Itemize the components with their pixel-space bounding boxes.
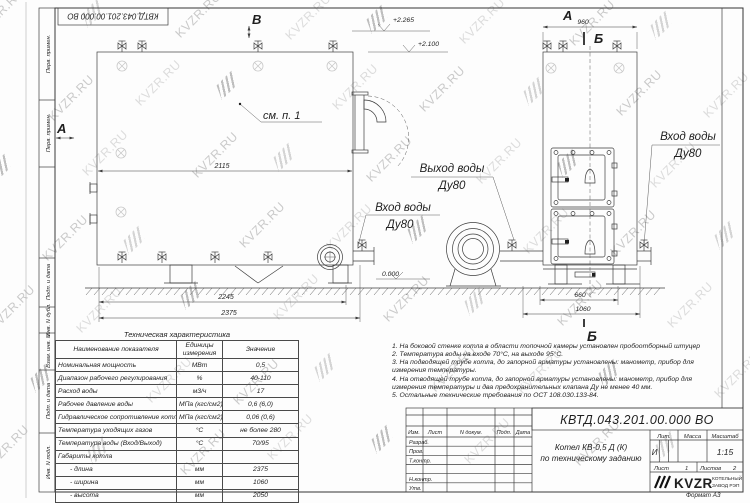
table-row: Расход водым3/ч17: [56, 385, 299, 398]
lit-header: Лит.: [656, 434, 671, 440]
valve-icon: [559, 41, 567, 52]
col-list: Лист: [427, 430, 443, 436]
table-row: Габариты котла: [56, 450, 299, 463]
product-name-line2: по техническому заданию: [540, 454, 641, 463]
scale-value: 1:15: [717, 447, 734, 457]
inlet-water-dn: Ду80: [385, 219, 414, 231]
drain-valve-icon: [264, 252, 272, 263]
dim-660: 660: [574, 292, 586, 299]
valve-icon: [118, 41, 126, 52]
section-b-bottom: Б: [587, 328, 597, 344]
elevation-marks: +2.265 +2.100 0.000: [352, 17, 448, 279]
outlet-water-label: Выход воды: [420, 163, 485, 175]
outlet-pipe: [352, 92, 409, 167]
section-b-top: Б: [594, 31, 603, 46]
kvzr-logo-cap1: КОТЕЛЬНЫЙ: [712, 474, 743, 482]
drain-valve-icon: [158, 252, 166, 263]
dim-960: 960: [577, 19, 589, 26]
tech-characteristics-table: Техническая характеристика Наименование …: [55, 330, 299, 503]
note-line: 1. На боковой стенке котла в области топ…: [392, 343, 714, 351]
kvzr-logo-cap2: ЗАВОД РЭП: [712, 483, 740, 489]
boiler-body-front: [97, 52, 353, 265]
note-line: 5. Остальные технические требования по О…: [392, 392, 714, 400]
lifting-lug-icon: [614, 63, 624, 73]
row-prov: Пров.: [409, 449, 424, 455]
table-row: Рабочее давление водыМПа (кгс/см2)0,6 (6…: [56, 398, 299, 411]
top-stamp-number: КВТД.043.201.00.000 ВО: [67, 12, 158, 21]
drawing-sheet: { "watermark": {"text": "KVZR.RU"}, "fra…: [0, 0, 750, 500]
row-utv: Утв.: [408, 486, 422, 492]
format-note: Формат А3: [686, 492, 720, 499]
note-line: 4. На отводящей трубе котла, до запорной…: [392, 376, 714, 392]
table-row: Температура уходящих газов°Сне более 280: [56, 424, 299, 437]
scale-header: Масштаб: [711, 434, 739, 440]
valve-icon: [254, 41, 262, 52]
elev-0000: 0.000: [382, 271, 399, 278]
dim-2115: 2115: [213, 163, 229, 170]
row-tkontr: Т.контр.: [409, 459, 431, 465]
elev-2100: +2.100: [418, 41, 439, 48]
table-row: Диапазон рабочего регулирования%40-110: [56, 372, 299, 385]
table-row: - длинамм2375: [56, 463, 299, 476]
flange-front: [318, 245, 343, 270]
note-line: 3. На подводящей трубе котла, до запорно…: [392, 359, 714, 375]
margin-box-label: Инв. N дубл.: [46, 303, 52, 337]
outlet-water-dn: Ду80: [437, 180, 466, 192]
valve-icon: [138, 41, 146, 52]
title-block: КВТД.043.201.00.000 ВО Изм. Лист N докум…: [406, 408, 743, 492]
margin-box-label: Перв. примен.: [46, 114, 52, 153]
tech-table-title: Техническая характеристика: [55, 330, 299, 340]
header-value: Значение: [223, 341, 299, 359]
header-units: Единицы измерения: [177, 341, 223, 359]
table-row: - ширинамм1060: [56, 476, 299, 489]
table-row: - высотамм2050: [56, 489, 299, 502]
margin-box-label: Подп. и дата: [46, 382, 52, 419]
valve-icon: [543, 41, 551, 52]
mass-header: Масса: [684, 434, 702, 440]
doc-number: КВТД.043.201.00.000 ВО: [560, 413, 714, 427]
lifting-lug-icon: [253, 61, 263, 71]
drain-valve-icon: [211, 252, 219, 263]
lifting-lug-icon: [116, 207, 126, 217]
elev-2265: +2.265: [393, 17, 414, 24]
col-data: Дата: [515, 430, 531, 436]
table-row: Номинальная мощностьМВт0,5: [56, 359, 299, 372]
dim-2375: 2375: [220, 310, 237, 317]
lifting-lug-icon: [116, 148, 126, 158]
margin-box-label: Взам. инв. N: [46, 333, 52, 368]
col-podp: Подп.: [497, 430, 512, 436]
side-inlet-valve-icon: [640, 240, 648, 251]
technical-notes: 1. На боковой стенке котла в области топ…: [392, 343, 714, 400]
product-name-line1: Котел КВ-0,5 Д (К): [555, 443, 628, 452]
valve-icon: [613, 41, 621, 52]
side-inlet-water-dn: Ду80: [673, 148, 702, 160]
row-razrab: Разраб.: [409, 440, 429, 446]
row-nkontr: Н.контр.: [409, 477, 432, 483]
valve-icon: [329, 41, 337, 52]
see-item-label: см. п. 1: [263, 110, 300, 122]
lifting-lug-icon: [546, 63, 556, 73]
table-row: Температура воды (Вход/Выход)°С70/95: [56, 437, 299, 450]
drain-valve-icon: [118, 252, 126, 263]
view-label-b: В: [252, 12, 261, 27]
dim-2245: 2245: [217, 294, 234, 301]
margin-box-label: Перв. примен.: [46, 35, 52, 74]
lit-value: И: [652, 448, 658, 457]
lifting-lug-icon: [117, 61, 127, 71]
lifting-lug-icon: [327, 61, 337, 71]
sheets-value: 2: [732, 466, 737, 472]
col-ndokum: N докум.: [460, 430, 482, 436]
furnace-door-lower: [551, 209, 617, 264]
front-view: В А см. п. 1 2115 2245 2375 +2.265 +2.10…: [56, 12, 514, 322]
kvzr-logo: KVZR КОТЕЛЬНЫЙ ЗАВОД РЭП: [655, 474, 743, 491]
sheet-label: Лист: [653, 466, 669, 472]
inlet-water-label: Вход воды: [375, 202, 431, 214]
furnace-door-upper: [551, 148, 617, 207]
sheets-label: Листов: [699, 466, 721, 472]
side-inlet-water-label: Вход воды: [660, 131, 716, 143]
side-view-label-a: А: [562, 8, 572, 23]
header-name: Наименование показателя: [56, 341, 177, 359]
table-header-row: Наименование показателя Единицы измерени…: [56, 341, 299, 359]
sheet-value: 1: [685, 466, 688, 472]
blower-fan: [446, 223, 501, 287]
margin-box-label: Подп. и дата: [46, 263, 52, 300]
dim-1060: 1060: [575, 306, 590, 313]
margin-box-label: Инв. N подл.: [46, 445, 52, 479]
table-row: Гидравлическое сопротивление котлаМПа (к…: [56, 411, 299, 424]
kvzr-logo-text: KVZR: [674, 476, 713, 491]
section-label-a: А: [56, 121, 66, 136]
col-izm: Изм.: [408, 430, 420, 436]
duct-valve-icon: [508, 240, 516, 251]
